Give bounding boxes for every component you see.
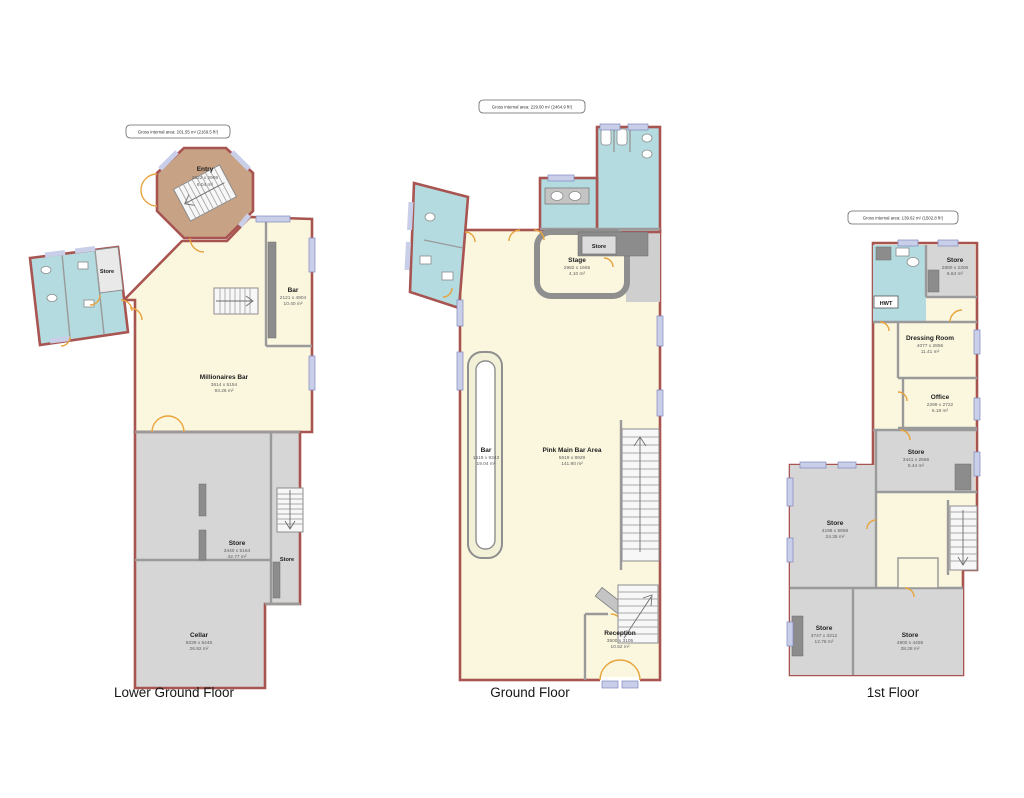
room-dims-label: 2880 x 2306 <box>942 265 969 271</box>
basin-fixture <box>907 258 919 267</box>
sink-fixture <box>78 262 88 269</box>
window <box>787 622 793 646</box>
room-area-label: 11.41 m² <box>921 349 940 355</box>
sink-fixture <box>569 192 581 201</box>
room-name-label: Store <box>908 449 925 456</box>
sink-fixture <box>442 272 453 280</box>
window <box>309 356 315 390</box>
entrance-door-leaf <box>622 681 638 688</box>
bar-counter-inner <box>476 361 495 549</box>
sink-fixture <box>420 256 431 264</box>
staircase <box>950 506 977 570</box>
window <box>974 330 980 354</box>
staircase <box>622 429 659 561</box>
room-name-label: Entry <box>197 166 214 173</box>
room-dims-label: 2121 x 4904 <box>280 295 307 301</box>
sink-fixture <box>642 150 652 158</box>
room-name-label: Cellar <box>190 632 209 639</box>
room-name-label: Millionaires Bar <box>200 374 249 381</box>
window <box>838 462 856 468</box>
sink-fixture <box>642 134 652 142</box>
window <box>628 124 648 130</box>
room-name-label: Stage <box>568 257 586 264</box>
room-area-label: 26.92 m² <box>190 646 209 652</box>
room-area-label: 24.35 m² <box>826 534 845 540</box>
room-dims-label: 4900 x 4455 <box>897 640 924 646</box>
window <box>457 352 463 390</box>
gross-area-badge: Gross internal area: 229.00 m² (2464.9 f… <box>479 100 585 113</box>
window <box>410 202 412 230</box>
toilet-fixture <box>601 129 611 145</box>
sink-fixture <box>551 192 563 201</box>
room-dims-label: 1519 x 9343 <box>473 455 500 461</box>
svg-text:Gross internal area: 229.00 m²: Gross internal area: 229.00 m² (2464.9 f… <box>492 105 573 110</box>
window <box>75 249 95 252</box>
svg-text:Gross internal area: 139.62 m²: Gross internal area: 139.62 m² (1502.8 f… <box>863 216 944 221</box>
room-dims-label: 5039 x 5446 <box>186 640 213 646</box>
window <box>45 253 65 256</box>
room-area-label: 141.90 m² <box>561 461 583 467</box>
floorplan-page: Entry 2522 x 2995 6.04 m² Store Bar 2121… <box>0 0 1024 798</box>
room-name-label: Reception <box>604 630 635 637</box>
floor-title: 1st Floor <box>867 685 920 700</box>
window <box>657 390 663 416</box>
room-dims-label: 4077 x 2856 <box>917 343 944 349</box>
toilet-fixture <box>47 294 57 301</box>
room-dims-label: 2982 x 1665 <box>564 265 591 271</box>
room-name-label: Pink Main Bar Area <box>542 447 601 454</box>
window <box>309 238 315 272</box>
window <box>800 462 826 468</box>
room-area-label: 10.52 m² <box>611 644 630 650</box>
window <box>50 339 70 342</box>
toilet-fixture <box>617 129 627 145</box>
window <box>600 124 620 130</box>
door-arc <box>141 174 157 190</box>
fixture-block <box>955 464 971 490</box>
window <box>657 316 663 346</box>
toilet-fixture <box>41 266 51 273</box>
svg-text:Gross internal area: 201.55 m²: Gross internal area: 201.55 m² (2169.5 f… <box>138 130 219 135</box>
room-dims-label: 5619 x 8929 <box>559 455 586 461</box>
door-arc <box>141 190 157 206</box>
window <box>548 175 574 181</box>
room-name-label: Store <box>947 257 964 264</box>
bar-counter <box>268 242 276 338</box>
alcove-room <box>898 558 938 588</box>
room-name-label: Store <box>827 520 844 527</box>
room-dims-label: 3500 x 3105 <box>607 638 634 644</box>
room-name-label: Store <box>592 244 606 250</box>
room-area-label: 19.04 m² <box>477 461 496 467</box>
toilet-fixture <box>425 213 435 221</box>
room-name-label: Store <box>280 557 294 563</box>
gross-area-badge: Gross internal area: 201.55 m² (2169.5 f… <box>126 125 230 138</box>
floor-title: Lower Ground Floor <box>114 685 235 700</box>
floorplan-drawing: Entry 2522 x 2995 6.04 m² Store Bar 2121… <box>0 0 1024 798</box>
room-name-label: Bar <box>481 447 492 454</box>
partition-wall <box>199 484 206 516</box>
room-dims-label: 3440 x 5164 <box>224 548 251 554</box>
room-name-label: Bar <box>288 287 299 294</box>
room-name-label: Store <box>229 540 246 547</box>
window <box>256 216 290 222</box>
window <box>974 398 980 420</box>
cistern-fixture <box>876 247 891 260</box>
fixture-block <box>792 616 803 656</box>
window <box>457 300 463 326</box>
window <box>787 478 793 506</box>
lower-ground-floor-plan: Entry 2522 x 2995 6.04 m² Store Bar 2121… <box>30 125 315 700</box>
window <box>787 538 793 562</box>
window <box>938 240 958 246</box>
svg-text:HWT: HWT <box>880 301 893 307</box>
room-dims-label: 3441 x 2566 <box>903 457 930 463</box>
sink-fixture <box>896 248 909 256</box>
hwt-label-box: HWT <box>874 296 898 308</box>
room-area-label: 6.04 m² <box>197 182 214 188</box>
room-name-label: Store <box>100 269 114 275</box>
fixture-block <box>928 270 939 292</box>
room-dims-label: 2522 x 2995 <box>192 175 219 181</box>
room-area-label: 6.64 m² <box>947 271 964 277</box>
room-dims-label: 3614 x 5154 <box>211 382 238 388</box>
room-dims-label: 2299 x 2722 <box>927 402 954 408</box>
room-area-label: 4.10 m² <box>569 271 586 277</box>
room-dims-label: 4196 x 5868 <box>822 528 849 534</box>
room-name-label: Dressing Room <box>906 335 954 342</box>
staircase <box>277 488 303 532</box>
floor-title: Ground Floor <box>490 685 570 700</box>
first-floor-plan: HWT Store 2880 x 2306 6.64 m² Dressing R… <box>787 211 980 700</box>
room-name-label: Office <box>931 394 950 401</box>
room-area-label: 6.18 m² <box>932 408 949 414</box>
partition-wall <box>199 530 206 560</box>
ground-floor-plan: Store Stage 2982 x 1665 4.10 m² Bar 1519… <box>407 100 663 700</box>
room-name-label: Store <box>816 625 833 632</box>
window <box>974 452 980 476</box>
room-dims-label: 3747 x 3312 <box>811 633 838 639</box>
room-area-label: 12.78 m² <box>815 639 834 645</box>
washroom-wing <box>410 183 468 308</box>
entrance-door-leaf <box>602 681 618 688</box>
sink-fixture <box>84 300 94 307</box>
room-area-label: 10.40 m² <box>284 301 303 307</box>
staircase <box>214 288 258 314</box>
room-area-label: 8.44 m² <box>908 463 925 469</box>
room-name-label: Store <box>902 632 919 639</box>
room-area-label: 93.26 m² <box>215 388 234 394</box>
room-area-label: 42.77 m² <box>228 554 247 560</box>
partition-wall <box>273 562 280 598</box>
window <box>407 242 409 270</box>
millionaires-bar-room <box>124 217 312 432</box>
room-area-label: 38.28 m² <box>901 646 920 652</box>
window <box>898 240 918 246</box>
gross-area-badge: Gross internal area: 139.62 m² (1502.8 f… <box>848 211 958 224</box>
